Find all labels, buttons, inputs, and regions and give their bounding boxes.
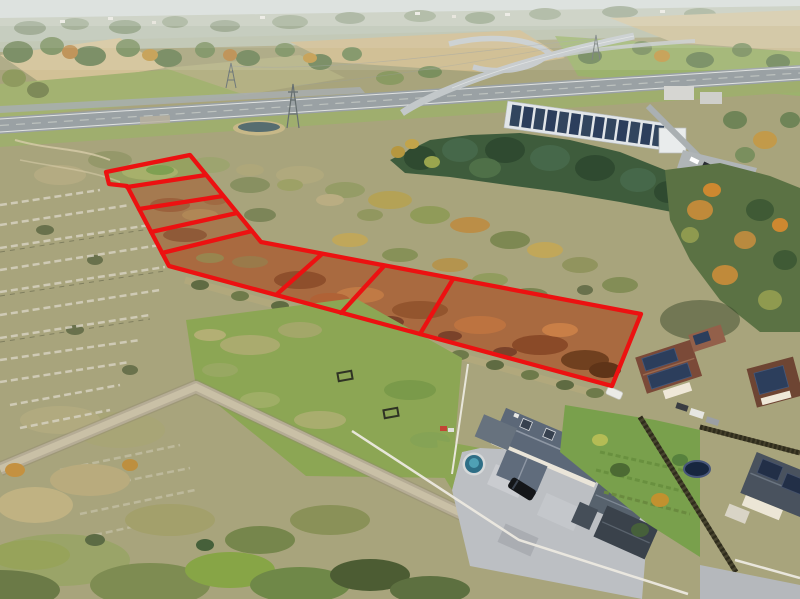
pond xyxy=(233,121,285,136)
trampoline xyxy=(684,461,710,477)
garden-object-white xyxy=(448,428,454,432)
apartment-block xyxy=(664,86,694,100)
garden-pool xyxy=(463,453,486,476)
garden-object-red xyxy=(440,426,447,431)
apartment-block xyxy=(700,92,722,104)
aerial-photo xyxy=(0,0,800,599)
haze-overlay xyxy=(0,0,800,70)
